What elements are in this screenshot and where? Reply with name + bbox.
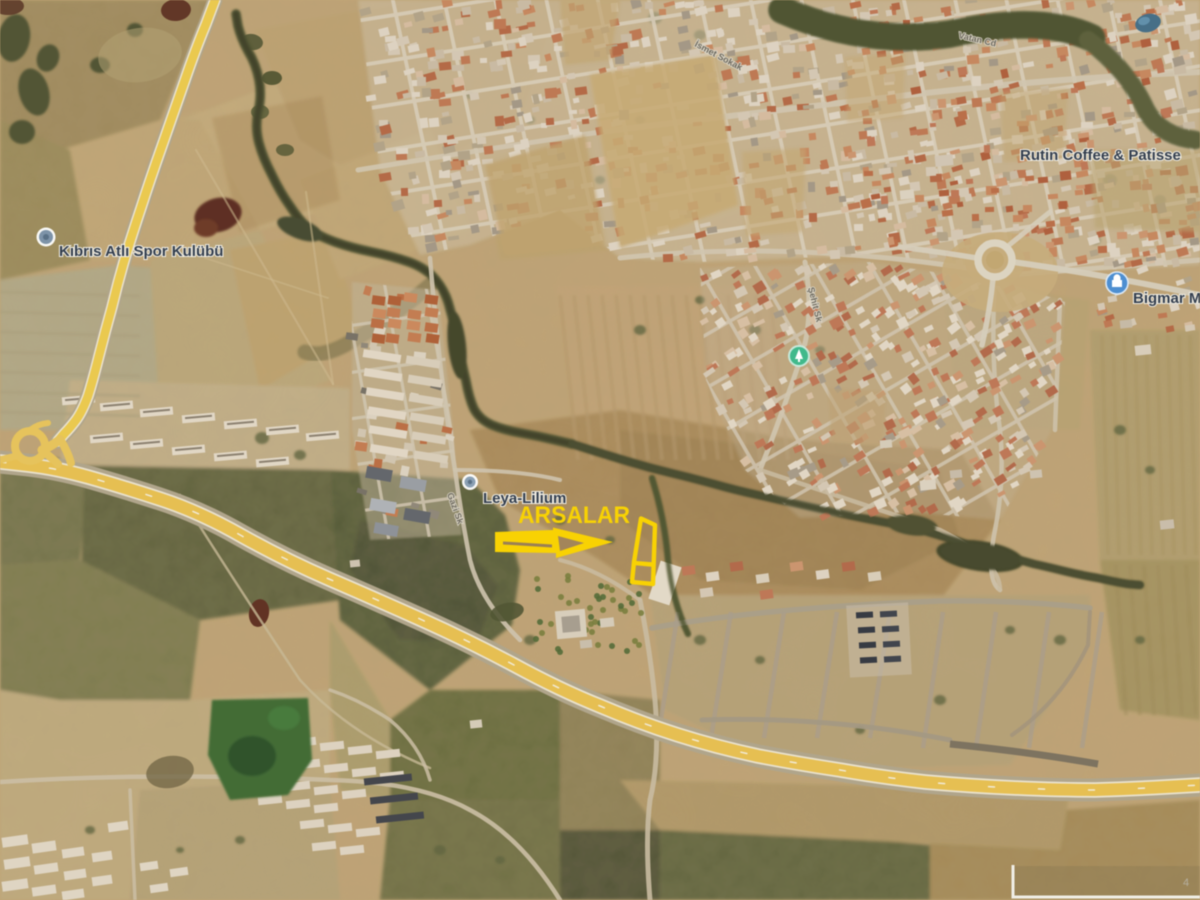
svg-text:Bigmar M: Bigmar M [1133,290,1200,307]
svg-text:Rutin Coffee & Patisse: Rutin Coffee & Patisse [1020,147,1181,164]
svg-text:Kıbrıs Atlı Spor Kulübü: Kıbrıs Atlı Spor Kulübü [59,243,223,260]
svg-text:ARSALAR: ARSALAR [518,502,630,529]
svg-text:4: 4 [1183,877,1189,889]
